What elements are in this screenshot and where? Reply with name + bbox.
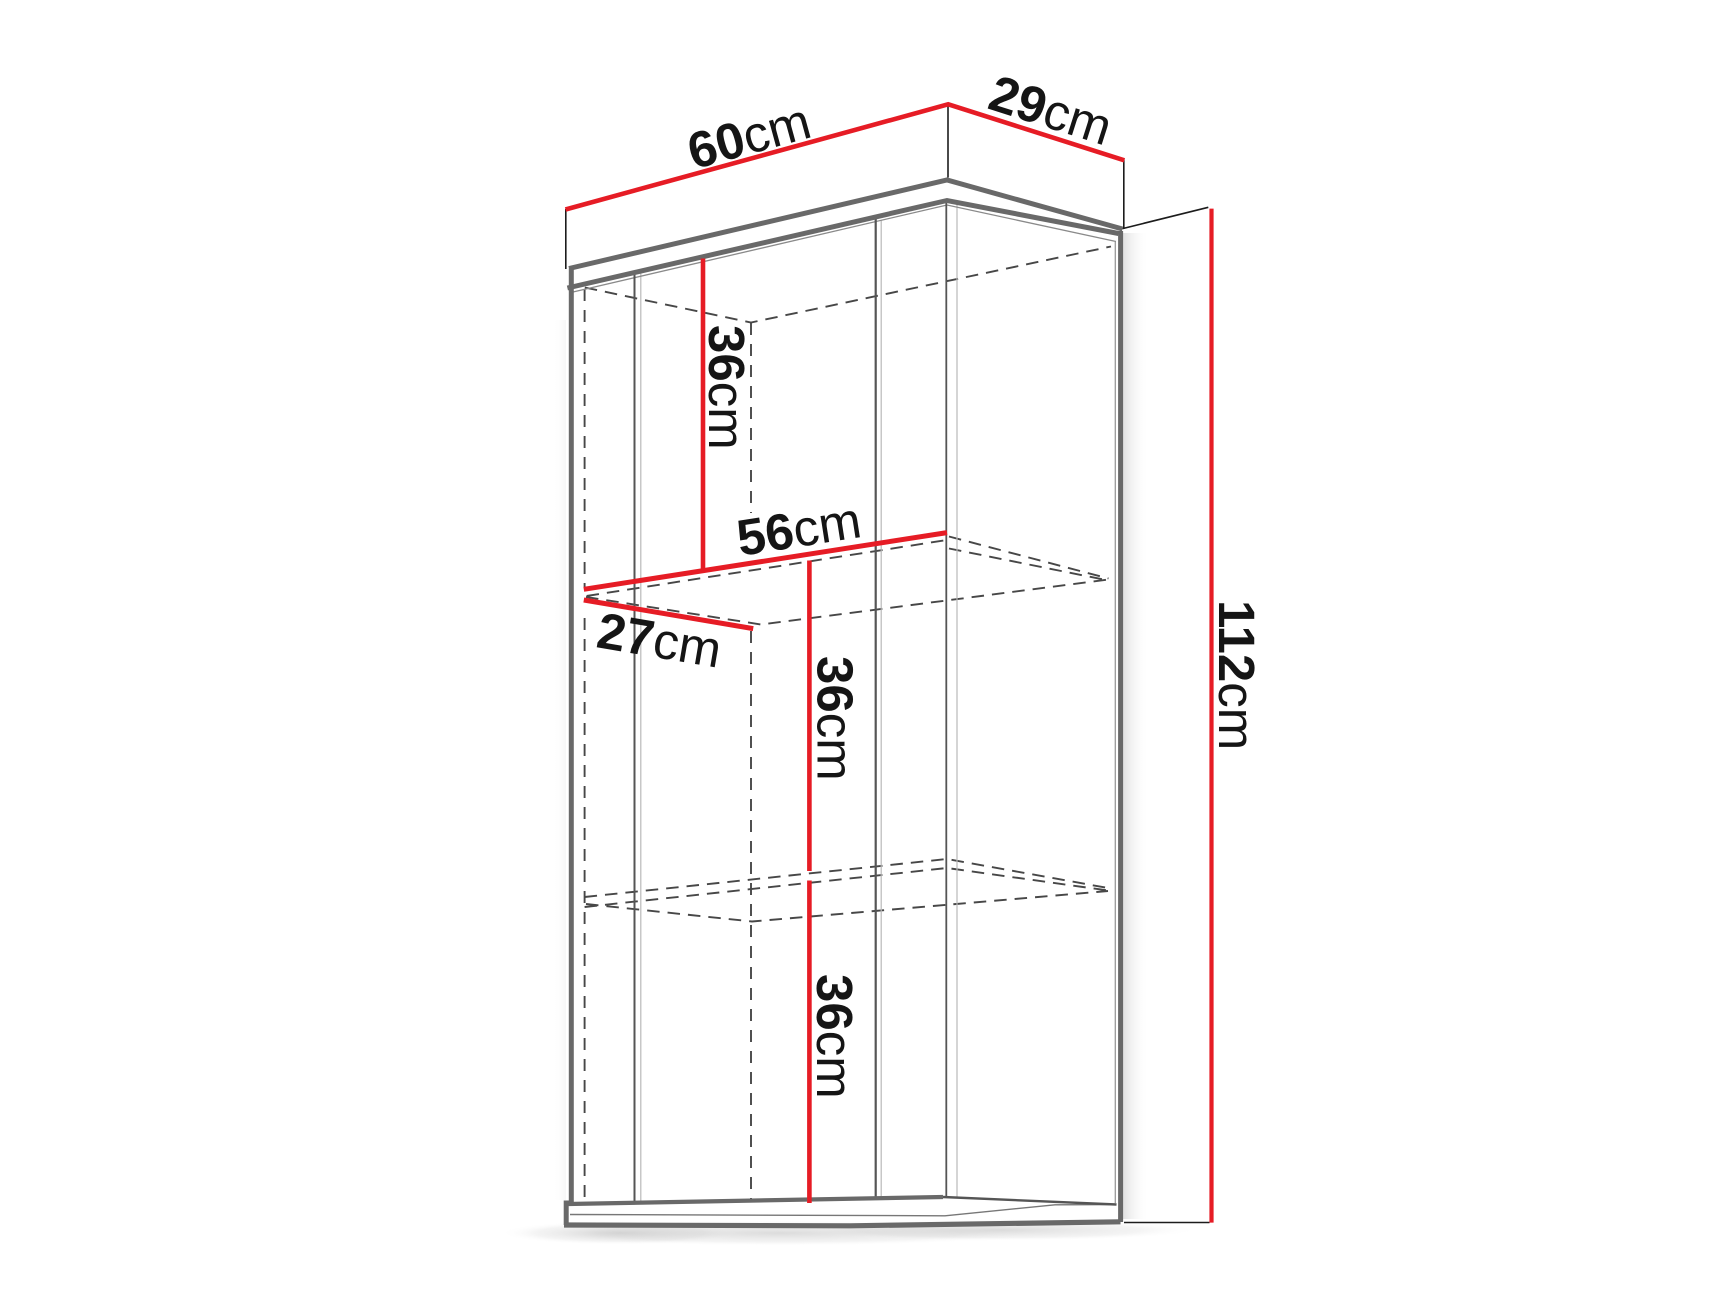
svg-text:36cm: 36cm xyxy=(698,325,755,450)
svg-text:27cm: 27cm xyxy=(593,602,725,679)
svg-text:36cm: 36cm xyxy=(806,974,863,1099)
svg-text:60cm: 60cm xyxy=(681,92,816,180)
svg-text:36cm: 36cm xyxy=(807,656,864,781)
svg-text:112cm: 112cm xyxy=(1208,600,1265,750)
svg-text:29cm: 29cm xyxy=(983,64,1119,156)
svg-text:56cm: 56cm xyxy=(733,491,865,567)
